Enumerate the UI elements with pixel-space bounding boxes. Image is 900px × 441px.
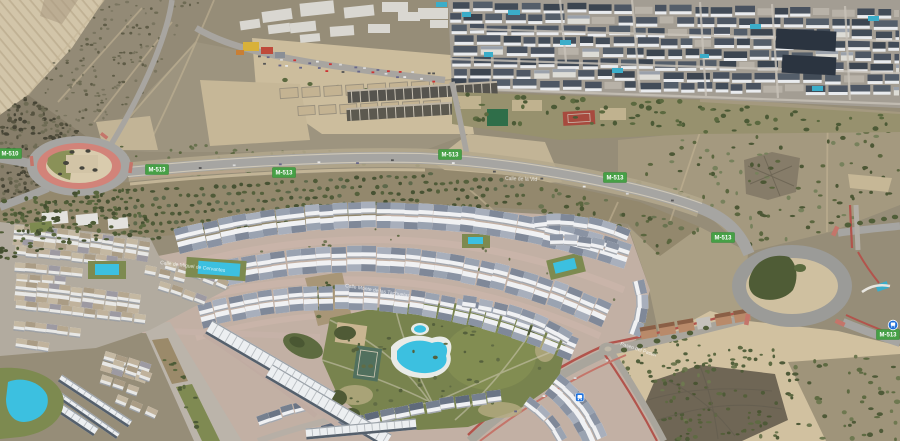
svg-text:M-513: M-513 [275, 170, 293, 176]
svg-text:M-513: M-513 [879, 332, 897, 338]
svg-text:M-513: M-513 [606, 175, 624, 181]
svg-text:M-510: M-510 [1, 151, 19, 157]
svg-text:M-513: M-513 [714, 235, 732, 241]
svg-text:Calle de la Vid: Calle de la Vid [505, 176, 538, 183]
svg-text:M-513: M-513 [441, 152, 459, 158]
svg-text:M-513: M-513 [148, 167, 166, 173]
